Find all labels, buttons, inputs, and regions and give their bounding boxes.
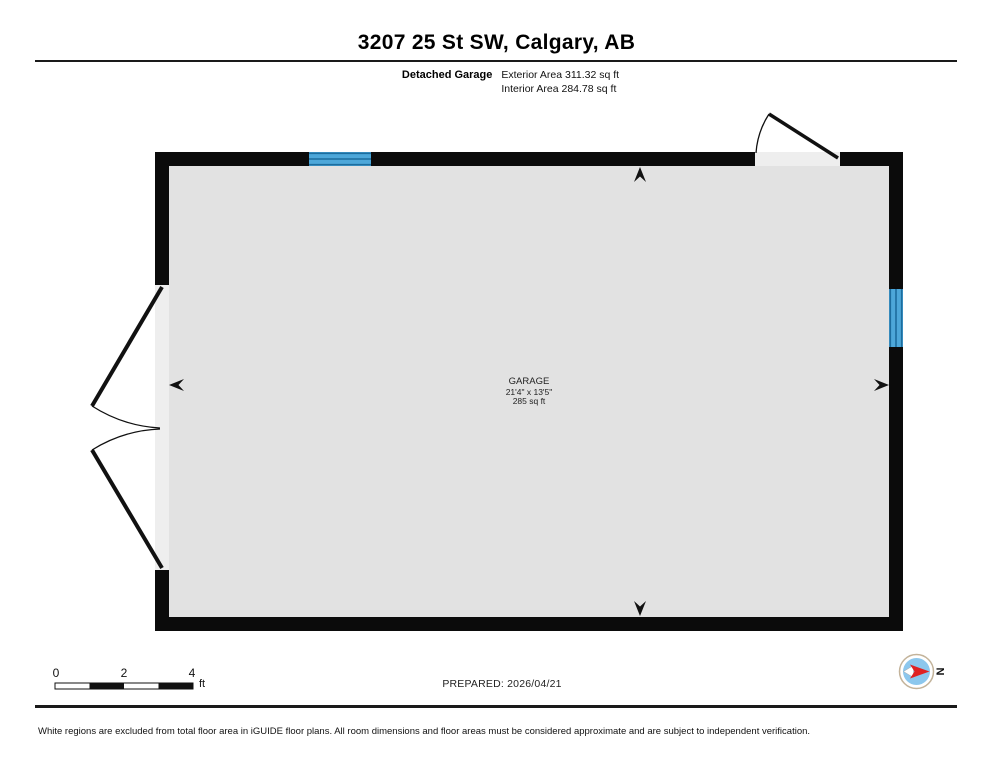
floorplan-drawing: N xyxy=(0,0,993,768)
door-leaf-top xyxy=(769,114,838,158)
footer-divider xyxy=(35,705,957,708)
prepared-date: PREPARED: 2026/04/21 xyxy=(442,678,561,690)
door-opening-top xyxy=(755,152,840,166)
door-arc-left-upper xyxy=(92,406,160,428)
scale-bar xyxy=(55,683,193,689)
door-leaf-left-lower xyxy=(92,450,162,568)
wall-left-upper xyxy=(155,152,169,285)
disclaimer-text: White regions are excluded from total fl… xyxy=(38,726,810,737)
floorplan-page: 3207 25 St SW, Calgary, AB Detached Gara… xyxy=(0,0,993,768)
compass-north-label: N xyxy=(934,668,946,676)
window-top xyxy=(309,152,371,166)
wall-left-lower xyxy=(155,570,169,631)
scale-unit-label: ft xyxy=(199,678,205,690)
room-label: GARAGE 21'4" x 13'5" 285 sq ft xyxy=(506,377,553,407)
door-arc-left-lower xyxy=(92,429,160,450)
door-leaf-left-upper xyxy=(92,287,162,406)
door-arc-top xyxy=(756,114,769,153)
scale-tick: 0 xyxy=(53,666,60,680)
scale-tick: 2 xyxy=(121,666,128,680)
wall-right xyxy=(889,152,903,631)
scale-tick: 4 xyxy=(189,666,196,680)
scale-bar-segment xyxy=(90,683,125,689)
scale-bar-segment xyxy=(159,683,194,689)
room-area: 285 sq ft xyxy=(506,397,553,407)
wall-bottom xyxy=(155,617,903,631)
compass-icon: N xyxy=(900,655,946,689)
room-name: GARAGE xyxy=(506,377,553,388)
window-right xyxy=(889,289,903,347)
